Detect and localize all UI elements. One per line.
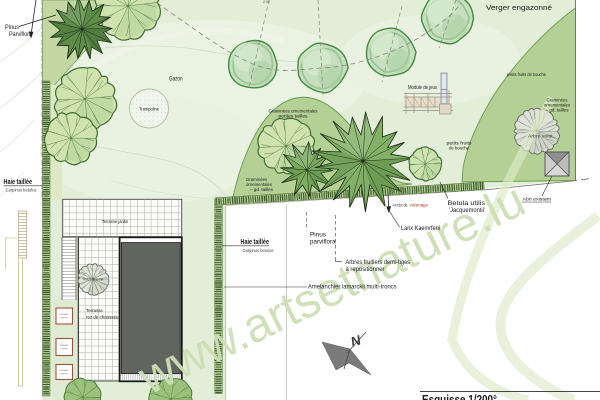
svg-text:rez de chaussée: rez de chaussée	[86, 315, 119, 321]
svg-text:Arbres fruitiers demi-tiges: Arbres fruitiers demi-tiges	[346, 259, 411, 266]
svg-text:Haie taillée: Haie taillée	[4, 179, 33, 186]
svg-text:Pinus: Pinus	[310, 232, 327, 239]
svg-text:– gd. tailles: – gd. tailles	[250, 187, 273, 192]
svg-text:Terrasse jardin: Terrasse jardin	[102, 219, 129, 224]
svg-text:petites tailles: petites tailles	[279, 114, 309, 119]
svg-text:de bouche: de bouche	[449, 146, 470, 151]
svg-text:voisinage: voisinage	[410, 202, 429, 207]
svg-text:Verger engazonné: Verger engazonné	[486, 5, 552, 12]
svg-text:Abri existant: Abri existant	[523, 197, 552, 203]
svg-text:Terrasse: Terrasse	[86, 308, 103, 314]
svg-text:potager: potager	[60, 343, 69, 347]
svg-text:Carpinus betulus: Carpinus betulus	[243, 248, 275, 254]
svg-text:'Jacquemontii': 'Jacquemontii'	[449, 207, 485, 214]
svg-text:parviflora: parviflora	[310, 239, 336, 246]
svg-text:carrés: carrés	[61, 347, 69, 351]
svg-text:Pinus: Pinus	[5, 24, 19, 31]
svg-text:carrés: carrés	[61, 372, 69, 376]
svg-text:Arbre exist.: Arbre exist.	[528, 134, 554, 139]
svg-text:Trampoline: Trampoline	[139, 106, 159, 111]
svg-text:Betula utilis: Betula utilis	[448, 200, 486, 207]
svg-text:Parviflora: Parviflora	[9, 31, 32, 38]
svg-text:Module de jeux: Module de jeux	[408, 85, 437, 91]
svg-text:Accès de: Accès de	[393, 202, 408, 207]
svg-text:à repositionner: à repositionner	[346, 266, 386, 273]
svg-text:Esquisse 1/200°: Esquisse 1/200°	[422, 395, 497, 400]
svg-text:potager: potager	[60, 368, 69, 372]
svg-text:carrés: carrés	[61, 316, 69, 320]
svg-text:Larix Kaemrferii: Larix Kaemrferii	[401, 225, 440, 232]
svg-text:Alnus spaethii: Alnus spaethii	[83, 278, 103, 282]
svg-text:petits fruits de bouche: petits fruits de bouche	[507, 72, 547, 77]
svg-text:Gazon: Gazon	[169, 76, 183, 83]
svg-text:Amelanchier lamarckii multi-tr: Amelanchier lamarckii multi-troncs	[308, 284, 397, 291]
svg-text:– gd. tailles: – gd. tailles	[546, 108, 569, 113]
svg-text:Carpinus betulus: Carpinus betulus	[6, 188, 38, 194]
svg-text:Haie taillée: Haie taillée	[241, 239, 270, 246]
svg-text:potager: potager	[60, 312, 69, 316]
